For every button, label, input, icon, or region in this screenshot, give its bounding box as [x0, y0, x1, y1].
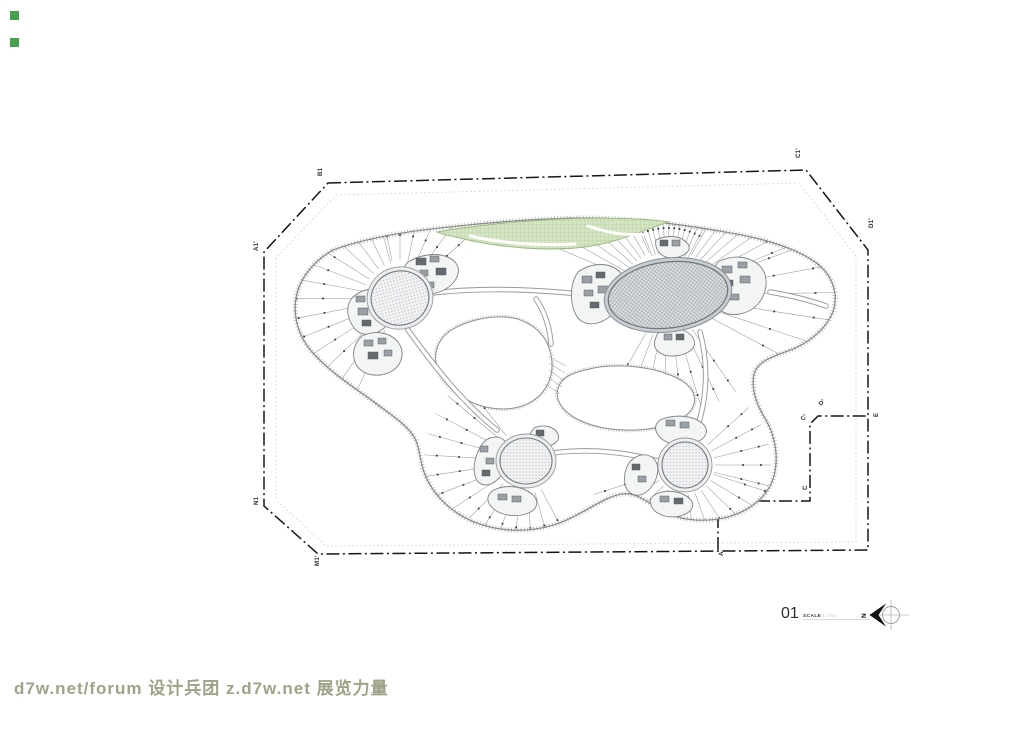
grid-label: D' — [817, 398, 827, 408]
scale-label: SCALE — [803, 613, 822, 619]
grid-label: B1 — [317, 167, 324, 176]
floor-plan-canvas: A1'B1C1'D1'ED'C'CB'A'AM1'N1 — [0, 0, 1024, 724]
north-letter: N — [861, 613, 868, 618]
scale-value: 1:400 — [822, 613, 836, 619]
grid-label: C1' — [795, 148, 802, 158]
core-lower-right — [658, 438, 712, 492]
north-arrow: N — [861, 600, 909, 630]
grid-label: N1 — [253, 496, 260, 505]
core-lower-left — [496, 434, 556, 488]
grid-label: M1' — [314, 555, 321, 566]
drawing-number: 01 — [781, 605, 799, 622]
grid-label: C' — [799, 413, 809, 423]
grid-label: A — [718, 551, 725, 556]
grid-label: C — [802, 485, 809, 490]
grid-label: A1' — [253, 241, 260, 251]
floor-plan-svg: A1'B1C1'D1'ED'C'CB'A'AM1'N1 — [0, 0, 1024, 724]
title-block: 01 SCALE 1:400 N — [781, 600, 909, 630]
watermark-square-top — [10, 11, 19, 20]
watermark-text: d7w.net/forum 设计兵团 z.d7w.net 展览力量 — [14, 674, 389, 699]
grid-label: D1' — [868, 218, 875, 228]
page: { "watermark": { "text": "d7w.net/forum … — [0, 0, 1024, 724]
watermark-square-bottom — [10, 38, 19, 47]
grid-label: E — [873, 413, 880, 417]
